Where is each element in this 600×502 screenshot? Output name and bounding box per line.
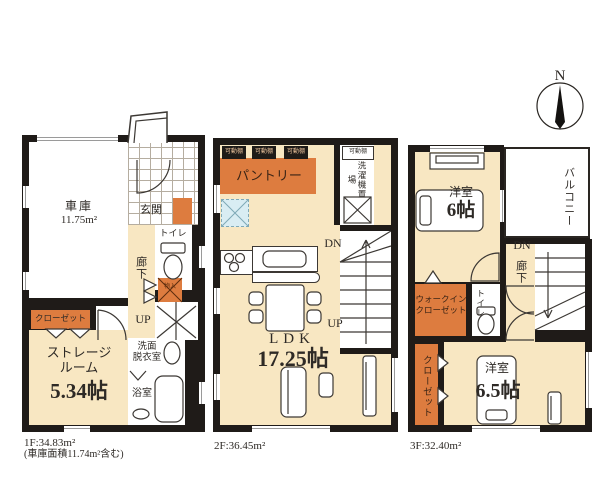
balcony-label: バルコニー bbox=[562, 158, 575, 236]
garage-size-label: 11.75m² bbox=[49, 214, 109, 227]
window-2f-left-a bbox=[214, 185, 220, 213]
balcony bbox=[504, 147, 590, 238]
dn-label-2f: DN bbox=[320, 237, 346, 251]
compass-icon bbox=[537, 83, 583, 129]
window-2f-left-c bbox=[214, 374, 220, 400]
storage-room-size-label: 5.34帖 bbox=[40, 379, 118, 403]
stove-counter bbox=[220, 250, 253, 275]
movable-shelf-4: 可動棚 bbox=[342, 146, 374, 160]
window-1f-bottom bbox=[64, 426, 90, 432]
bathroom-label: 浴室 bbox=[128, 388, 156, 400]
balcony-top-gap bbox=[504, 139, 600, 147]
stairs-3f-area bbox=[535, 244, 585, 330]
window-2f-left-b bbox=[214, 288, 220, 314]
floor3-area-label: 3F:32.40m² bbox=[410, 440, 461, 453]
bedroom2-label: 洋室 bbox=[477, 362, 517, 376]
window-balcony bbox=[500, 190, 504, 222]
kitchen-counter bbox=[252, 246, 318, 272]
pantry-label: パントリー bbox=[225, 169, 313, 184]
floor2-area-label: 2F:36.45m² bbox=[214, 440, 265, 453]
toilet-label-1f: トイレ bbox=[154, 228, 192, 238]
wall-stairs-bottom-2f bbox=[340, 348, 391, 354]
movable-shelf-3: 可動棚 bbox=[284, 146, 308, 159]
entrance-label: 玄関 bbox=[132, 204, 170, 217]
window-1f-left-a bbox=[23, 186, 29, 208]
hallway-label-3f: 廊下 bbox=[514, 256, 527, 288]
small-storage-label: 物入 bbox=[159, 284, 181, 291]
compass-north-label: N bbox=[551, 68, 569, 85]
floor-plan-page: { "palette":{"wall":"#1f1b18","floor_cre… bbox=[0, 0, 600, 502]
window-3f-top bbox=[430, 146, 484, 152]
window-3f-bottom bbox=[472, 426, 540, 432]
bedroom2-size-label: 6.5帖 bbox=[470, 380, 526, 403]
window-1f-right-b bbox=[199, 382, 205, 404]
washroom-label-2: 脱衣室 bbox=[127, 353, 167, 364]
closet-label-1f: クローゼット bbox=[32, 314, 89, 324]
shoe-cabinet bbox=[173, 198, 192, 224]
garage-door-window bbox=[37, 135, 118, 144]
hallway-label-1f: 廊下 bbox=[134, 252, 147, 284]
up-label-1f: UP bbox=[130, 313, 156, 327]
wall-laundry-left bbox=[334, 145, 340, 225]
washroom-label-1: 洗面 bbox=[130, 342, 164, 353]
kitchen-island-counter bbox=[252, 272, 320, 283]
window-3f-right bbox=[586, 352, 592, 408]
storage-room-label-1: ストレージ bbox=[40, 346, 118, 361]
ldk-size-label: 17.25帖 bbox=[248, 346, 338, 371]
wic-label-2: クローゼット bbox=[412, 306, 470, 316]
movable-shelf-2: 可動棚 bbox=[252, 146, 276, 159]
wic-label-1: ウォークイン bbox=[412, 295, 470, 305]
bedroom1-label: 洋室 bbox=[441, 186, 481, 200]
window-1f-right-a bbox=[199, 246, 205, 268]
garage-label: 車庫 bbox=[49, 200, 109, 214]
refrigerator-space bbox=[221, 199, 249, 227]
toilet-label-3f: トイレ bbox=[475, 286, 485, 320]
stairs-1f-area bbox=[155, 302, 198, 340]
closet-label-3f: クローゼット bbox=[420, 350, 431, 422]
window-2f-right bbox=[392, 358, 398, 412]
floor1-area-label: 1F:34.83m² bbox=[24, 437, 75, 450]
movable-shelf-1: 可動棚 bbox=[222, 146, 246, 159]
dn-label-3f: DN bbox=[509, 239, 535, 253]
up-label-2f: UP bbox=[322, 317, 348, 331]
laundry-label: 洗濯機置場 bbox=[347, 160, 367, 200]
balcony-right-gap bbox=[590, 139, 600, 239]
floor1-area-note: (車庫面積11.74m²含む) bbox=[24, 449, 124, 461]
window-2f-bottom bbox=[252, 426, 330, 432]
storage-room-label-2: ルーム bbox=[40, 361, 118, 376]
window-1f-left-b bbox=[23, 272, 29, 290]
bedroom1-size-label: 6帖 bbox=[441, 200, 481, 222]
